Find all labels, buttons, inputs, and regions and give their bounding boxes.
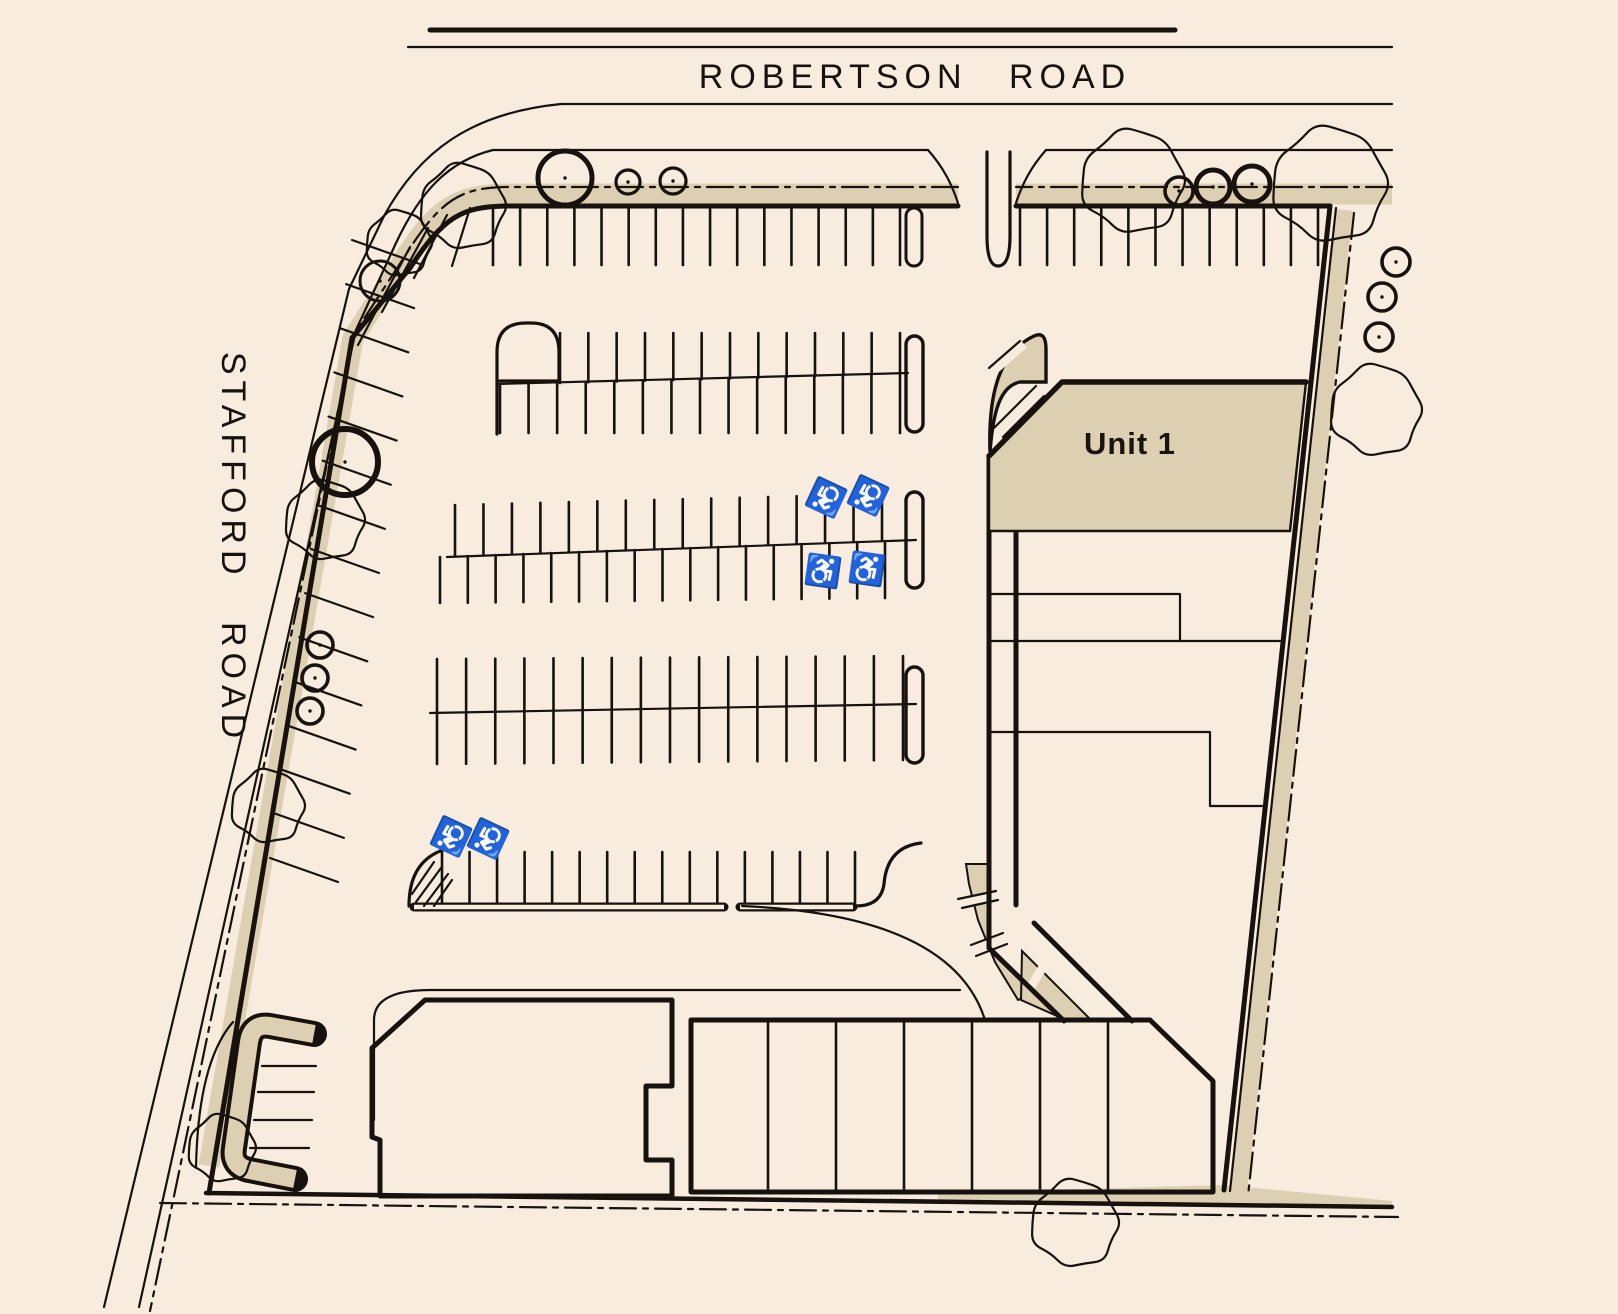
curb-island	[906, 208, 922, 266]
row-e-arc-island	[409, 849, 452, 906]
tree-trunk-dot	[1211, 185, 1214, 188]
tree-trunk-dot	[671, 179, 674, 182]
parking-row-e	[442, 852, 855, 903]
stafford-road-lines	[104, 104, 561, 1307]
row-b-end-curb	[906, 336, 923, 432]
parking-row-d-bottom	[437, 705, 903, 764]
accessible-stall-icons: ♿ ♿ ♿ ♿ ♿ ♿	[427, 472, 893, 863]
tree-trunk-dot	[1380, 295, 1383, 298]
robertson-road-label: ROBERTSON ROAD	[699, 58, 1131, 96]
service-corridor	[989, 456, 1132, 1021]
wheelchair-icon: ♿	[802, 551, 844, 591]
shrub-icon	[1331, 364, 1422, 455]
south-walk-line	[374, 990, 960, 1120]
site-plan-drawing: Unit 1 ROBERTSON ROAD STAFFORD ROAD ♿ ♿ …	[0, 0, 1618, 1314]
parking-bank-top-west	[493, 208, 900, 265]
row-d-end-curb	[906, 667, 923, 763]
tree-trunk-dot	[308, 709, 311, 712]
tree-trunk-dot	[1394, 260, 1397, 263]
tree-trunk-dot	[1250, 182, 1253, 185]
stafford-road-label: STAFFORD ROAD	[214, 352, 252, 744]
row-e-end-hook	[856, 843, 921, 906]
tree-trunk-dot	[343, 460, 346, 463]
entrance-drive	[906, 152, 1010, 266]
tree-trunk-dot	[378, 279, 381, 282]
parking-stall-line	[282, 770, 350, 794]
wheelchair-icon: ♿	[464, 815, 513, 863]
wheelchair-icon: ♿	[846, 549, 888, 589]
boulevard-strips	[209, 194, 1392, 1209]
wheelchair-icon: ♿	[802, 474, 851, 522]
parking-stall-line	[288, 726, 356, 750]
row-d-backline	[430, 704, 916, 713]
tree-trunk-dot	[626, 180, 629, 183]
west-building	[372, 1000, 672, 1196]
parking-bank-top-east	[1020, 208, 1318, 265]
tree-trunk-dot	[1377, 335, 1380, 338]
east-building	[691, 1020, 1213, 1192]
future-unit-lines	[991, 594, 1280, 806]
parking-stall-line	[276, 814, 344, 838]
right-strip	[1239, 210, 1345, 1193]
tree-trunk-dot	[313, 676, 316, 679]
tree-trunk-dot	[318, 643, 321, 646]
east-building-bays	[768, 1022, 1108, 1190]
drive-curve	[742, 906, 985, 1020]
unit1-label: Unit 1	[1084, 426, 1176, 461]
parking-stall-line	[270, 858, 338, 882]
site-plan: Unit 1 ROBERTSON ROAD STAFFORD ROAD ♿ ♿ …	[0, 0, 1618, 1314]
tree-trunk-dot	[563, 176, 566, 179]
robertson-road-lines	[408, 30, 1392, 203]
wheelchair-icon: ♿	[844, 472, 893, 520]
